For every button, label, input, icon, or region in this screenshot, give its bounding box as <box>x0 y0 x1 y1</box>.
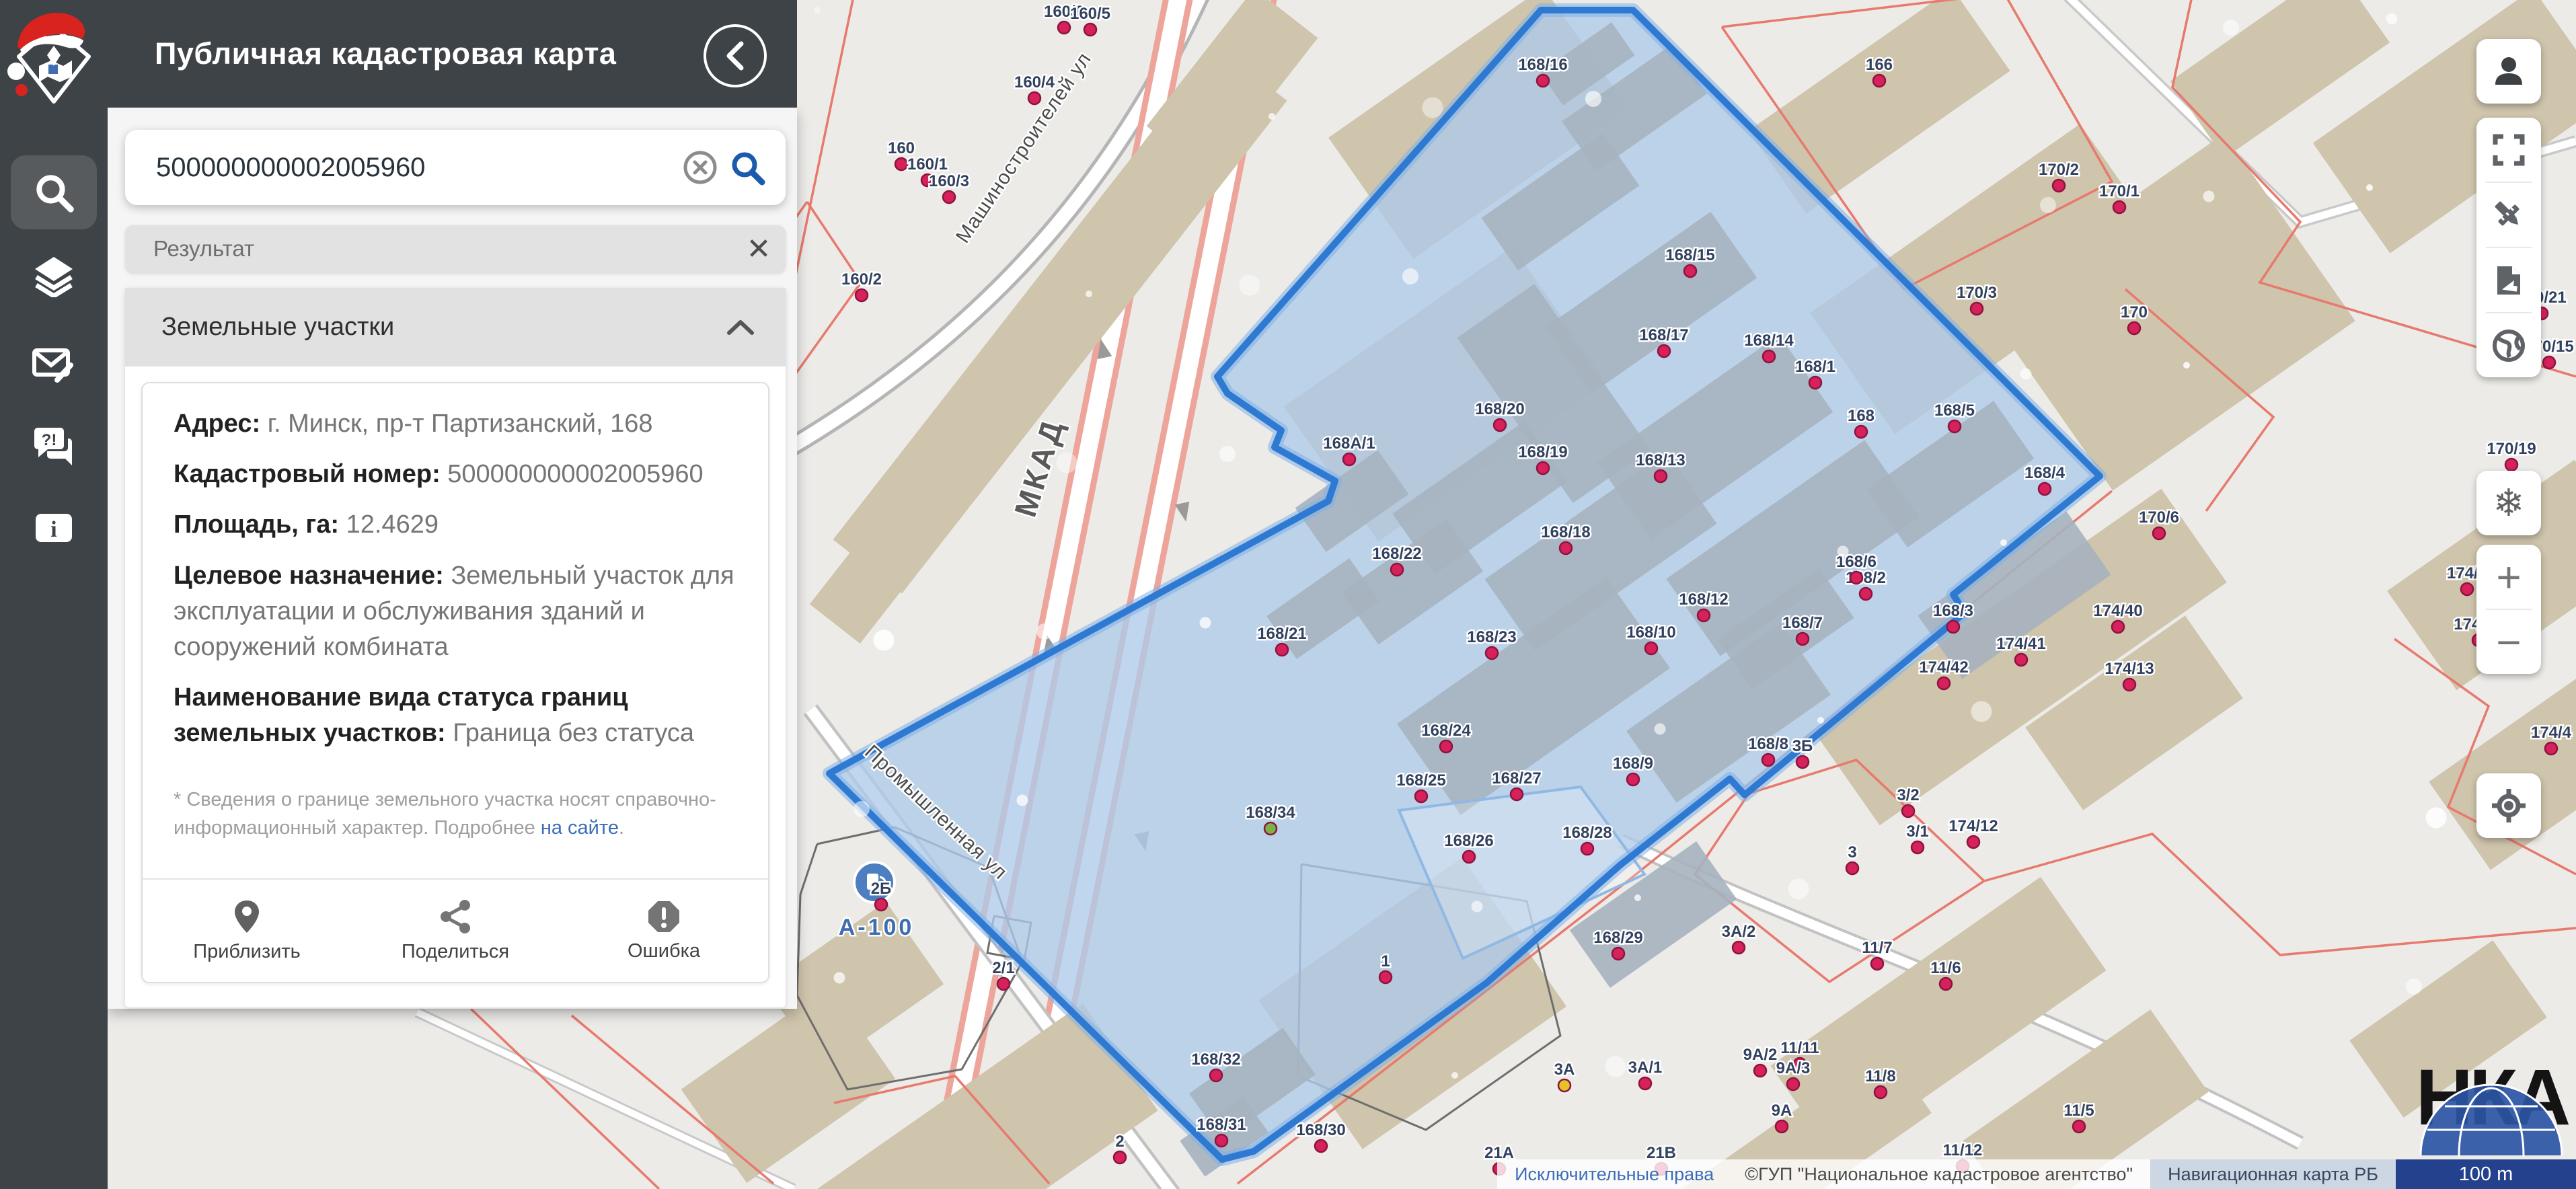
map-marker[interactable]: 1 <box>1379 952 1392 983</box>
snow-dot <box>1838 546 1849 558</box>
svg-text:11/5: 11/5 <box>2063 1102 2094 1120</box>
map-marker[interactable]: 2 <box>1114 1133 1126 1163</box>
sidebar-item-layers[interactable] <box>11 239 97 313</box>
map-tools-group <box>2476 118 2541 377</box>
svg-text:168/28: 168/28 <box>1562 824 1612 842</box>
svg-text:168А/1: 168А/1 <box>1323 434 1375 453</box>
search-panel: Результат ✕ Земельные участки Адрес: г. … <box>108 108 797 1009</box>
app-window: { "app": { "title": "Публичная кадастров… <box>0 0 2576 1189</box>
street-label: А-100 <box>839 915 915 940</box>
export-button[interactable] <box>2476 248 2541 312</box>
faq-icon: ?! <box>32 424 76 468</box>
info-icon: i <box>33 507 75 549</box>
snow-dot <box>1086 291 1092 297</box>
svg-text:9А/2: 9А/2 <box>1743 1046 1778 1064</box>
snow-dot <box>1036 623 1053 640</box>
svg-text:170/2: 170/2 <box>2039 161 2079 179</box>
svg-text:174/40: 174/40 <box>2093 602 2142 620</box>
svg-text:168/31: 168/31 <box>1197 1116 1246 1134</box>
svg-text:168/10: 168/10 <box>1626 623 1675 642</box>
svg-text:168/19: 168/19 <box>1518 443 1567 461</box>
snow-dot <box>2040 197 2056 213</box>
svg-text:168/7: 168/7 <box>1782 614 1823 632</box>
snow-dot <box>1472 901 1483 913</box>
sidebar-item-info[interactable]: i <box>11 491 97 565</box>
scale-bar: 100 m <box>2396 1159 2576 1189</box>
svg-text:160/1: 160/1 <box>907 155 948 174</box>
svg-text:168/34: 168/34 <box>1246 804 1295 822</box>
svg-text:9А: 9А <box>1772 1102 1792 1120</box>
svg-text:174/41: 174/41 <box>1996 635 2045 653</box>
pin-icon <box>232 899 262 934</box>
person-icon <box>2491 54 2526 89</box>
svg-text:166: 166 <box>1866 56 1893 74</box>
svg-text:160/2: 160/2 <box>841 270 882 289</box>
svg-text:11/11: 11/11 <box>1780 1039 1819 1057</box>
search-submit-button[interactable] <box>724 144 771 191</box>
rights-link[interactable]: Исключительные права <box>1515 1164 1714 1185</box>
svg-text:170/6: 170/6 <box>2139 508 2179 527</box>
svg-text:168/29: 168/29 <box>1593 929 1642 947</box>
snow-dot <box>814 7 821 13</box>
snow-dot <box>1655 724 1666 735</box>
snow-theme-button[interactable]: ❄ <box>2476 471 2541 535</box>
fullscreen-button[interactable] <box>2476 118 2541 182</box>
svg-text:168/5: 168/5 <box>1934 401 1975 420</box>
parcel-fields: Адрес: г. Минск, пр-т Партизанский, 168К… <box>143 383 768 767</box>
svg-text:168/26: 168/26 <box>1444 832 1493 850</box>
chevron-left-icon <box>724 40 747 72</box>
fullscreen-icon <box>2493 134 2525 166</box>
collapse-panel-button[interactable] <box>704 24 767 87</box>
measure-button[interactable] <box>2476 183 2541 247</box>
svg-text:11/8: 11/8 <box>1865 1067 1895 1085</box>
share-button[interactable]: Поделиться <box>351 880 560 982</box>
snow-dot <box>1634 894 1641 901</box>
nka-logo: НКА <box>2413 1056 2571 1157</box>
section-title: Земельные участки <box>161 313 725 342</box>
snow-dot <box>1605 1057 1626 1077</box>
svg-text:i: i <box>50 517 56 542</box>
snow-dot <box>1423 98 1443 118</box>
globe-button[interactable] <box>2476 313 2541 377</box>
svg-text:168/23: 168/23 <box>1467 628 1516 646</box>
svg-text:3Б: 3Б <box>1792 737 1813 755</box>
svg-text:3/1: 3/1 <box>1906 822 1928 841</box>
nav-map-credit: Навигационная карта РБ <box>2150 1159 2396 1189</box>
chevron-up-icon[interactable] <box>725 318 756 337</box>
svg-text:11/12: 11/12 <box>1943 1141 1983 1159</box>
svg-text:168/14: 168/14 <box>1744 332 1794 350</box>
sidebar-item-feedback[interactable] <box>11 328 97 402</box>
header: Публичная кадастровая карта <box>108 0 797 108</box>
snow-dot <box>1268 113 1275 120</box>
layers-icon <box>32 254 75 297</box>
svg-text:168/20: 168/20 <box>1475 400 1524 418</box>
login-button[interactable] <box>2476 39 2541 104</box>
svg-text:2Б: 2Б <box>871 880 892 898</box>
svg-text:174/42: 174/42 <box>1919 658 1968 677</box>
zoom-out-button[interactable]: − <box>2476 610 2541 674</box>
svg-text:11/6: 11/6 <box>1930 959 1961 977</box>
parcel-field: Адрес: г. Минск, пр-т Партизанский, 168 <box>174 406 737 442</box>
parcel-detail-card: Адрес: г. Минск, пр-т Партизанский, 168К… <box>141 382 769 983</box>
svg-text:11/7: 11/7 <box>1862 939 1892 957</box>
snow-dot <box>1817 717 1824 724</box>
svg-text:168/16: 168/16 <box>1518 56 1567 74</box>
sidebar-item-search[interactable] <box>11 155 97 229</box>
results-card: Земельные участки Адрес: г. Минск, пр-т … <box>125 288 786 1007</box>
snow-dot <box>1585 91 1601 107</box>
globe-icon <box>2492 329 2526 362</box>
locate-me-button[interactable] <box>2476 773 2541 838</box>
snow-dot <box>2223 20 2239 36</box>
svg-text:160: 160 <box>888 139 915 157</box>
svg-text:168/32: 168/32 <box>1191 1050 1240 1069</box>
svg-text:168/15: 168/15 <box>1665 246 1714 264</box>
zoom-to-parcel-button[interactable]: Приблизить <box>143 880 351 982</box>
svg-text:168/22: 168/22 <box>1372 545 1421 563</box>
snow-dot <box>2386 13 2398 25</box>
magnifier-icon <box>728 148 767 187</box>
parcel-field: Наименование вида статуса границ земельн… <box>174 680 737 751</box>
svg-text:?!: ?! <box>42 431 57 449</box>
svg-text:168/4: 168/4 <box>2024 464 2066 482</box>
snow-dot <box>1057 453 1077 473</box>
snow-dot <box>1200 617 1211 629</box>
svg-text:168/30: 168/30 <box>1296 1121 1345 1139</box>
svg-text:2/1: 2/1 <box>992 959 1014 977</box>
snow-dot <box>834 972 845 984</box>
snow-dot <box>1017 795 1028 806</box>
svg-text:3А/2: 3А/2 <box>1722 923 1756 941</box>
section-header-land-parcels[interactable]: Земельные участки <box>125 288 786 367</box>
snow-dot <box>2183 362 2190 369</box>
zoom-in-button[interactable]: + <box>2476 545 2541 609</box>
snow-dot <box>2020 369 2032 380</box>
search-input[interactable] <box>155 152 677 184</box>
snow-dot <box>1971 701 1992 722</box>
svg-text:168/24: 168/24 <box>1421 722 1471 740</box>
action-bar: Приблизить Поделиться <box>143 878 768 982</box>
measure-icon <box>2491 198 2526 233</box>
svg-text:170/3: 170/3 <box>1957 284 1997 302</box>
svg-text:168: 168 <box>1848 407 1874 425</box>
snow-dot <box>2203 191 2215 202</box>
svg-text:3: 3 <box>1848 843 1856 861</box>
snow-dot <box>1788 879 1809 900</box>
report-error-button[interactable]: Ошибка <box>560 880 768 982</box>
parcel-field: Целевое назначение: Земельный участок дл… <box>174 558 737 666</box>
error-icon <box>647 900 681 933</box>
svg-text:168/1: 168/1 <box>1795 358 1835 376</box>
clear-search-button[interactable] <box>677 144 724 191</box>
zoom-control-group: + − <box>2476 545 2541 674</box>
svg-text:168/17: 168/17 <box>1639 326 1688 344</box>
svg-text:3/2: 3/2 <box>1897 786 1919 804</box>
site-link[interactable]: на сайте <box>541 817 619 839</box>
search-icon <box>32 171 75 214</box>
snow-dot <box>1240 275 1260 296</box>
sidebar: ?! i <box>0 0 108 1189</box>
svg-text:1: 1 <box>1381 952 1390 970</box>
snow-dot <box>2406 979 2422 995</box>
svg-text:168/3: 168/3 <box>1933 602 1973 620</box>
map-marker[interactable]: 3 <box>1846 843 1858 874</box>
svg-text:168/13: 168/13 <box>1636 451 1685 469</box>
feedback-icon <box>32 344 76 387</box>
snow-dot <box>1402 268 1418 284</box>
svg-text:168/18: 168/18 <box>1541 523 1590 541</box>
svg-text:160/5: 160/5 <box>1070 5 1110 23</box>
snow-dot <box>1451 1072 1458 1079</box>
agency-credit: ©ГУП "Национальное кадастровое агентство… <box>1745 1164 2133 1185</box>
parcel-field: Кадастровый номер: 500000000002005960 <box>174 457 737 492</box>
snowflake-icon: ❄ <box>2493 481 2525 525</box>
svg-text:174/13: 174/13 <box>2105 660 2154 678</box>
snow-dot <box>2366 184 2373 191</box>
svg-text:168/12: 168/12 <box>1679 590 1728 609</box>
close-results-button[interactable]: ✕ <box>732 229 786 269</box>
svg-text:170/19: 170/19 <box>2487 440 2536 458</box>
snow-dot <box>854 801 870 817</box>
snow-dot <box>2426 808 2447 829</box>
result-bar: Результат ✕ <box>125 225 786 272</box>
svg-text:3А/1: 3А/1 <box>1628 1059 1663 1077</box>
svg-text:160/3: 160/3 <box>929 172 969 190</box>
svg-text:160/4: 160/4 <box>1014 73 1055 91</box>
share-icon <box>439 899 471 934</box>
svg-text:9А/3: 9А/3 <box>1776 1059 1811 1077</box>
export-doc-icon <box>2493 264 2524 297</box>
page-title: Публичная кадастровая карта <box>155 36 616 71</box>
svg-text:168/9: 168/9 <box>1613 755 1653 773</box>
locate-icon <box>2491 788 2526 823</box>
attribution-bar: Исключительные права ©ГУП "Национальное … <box>1497 1159 2576 1189</box>
footnote: * Сведения о границе земельного участка … <box>143 767 768 879</box>
snow-dot <box>874 630 895 651</box>
svg-text:2: 2 <box>1115 1133 1124 1151</box>
svg-text:168/8: 168/8 <box>1748 735 1788 753</box>
app-logo-icon <box>4 4 104 105</box>
snow-dot <box>2000 539 2007 546</box>
svg-text:168/25: 168/25 <box>1396 771 1445 790</box>
sidebar-item-faq[interactable]: ?! <box>11 409 97 483</box>
result-bar-title: Результат <box>153 236 732 262</box>
svg-text:168/21: 168/21 <box>1257 625 1306 643</box>
search-card <box>125 130 786 205</box>
snow-dot <box>1219 446 1236 462</box>
svg-text:3А: 3А <box>1554 1061 1575 1079</box>
svg-text:170/1: 170/1 <box>2099 182 2139 200</box>
svg-text:168/27: 168/27 <box>1492 769 1541 788</box>
parcel-field: Площадь, га: 12.4629 <box>174 507 737 543</box>
clear-icon <box>682 149 718 186</box>
svg-text:174/4: 174/4 <box>2531 724 2572 742</box>
svg-text:174/12: 174/12 <box>1948 817 1998 835</box>
svg-text:170: 170 <box>2121 303 2148 321</box>
